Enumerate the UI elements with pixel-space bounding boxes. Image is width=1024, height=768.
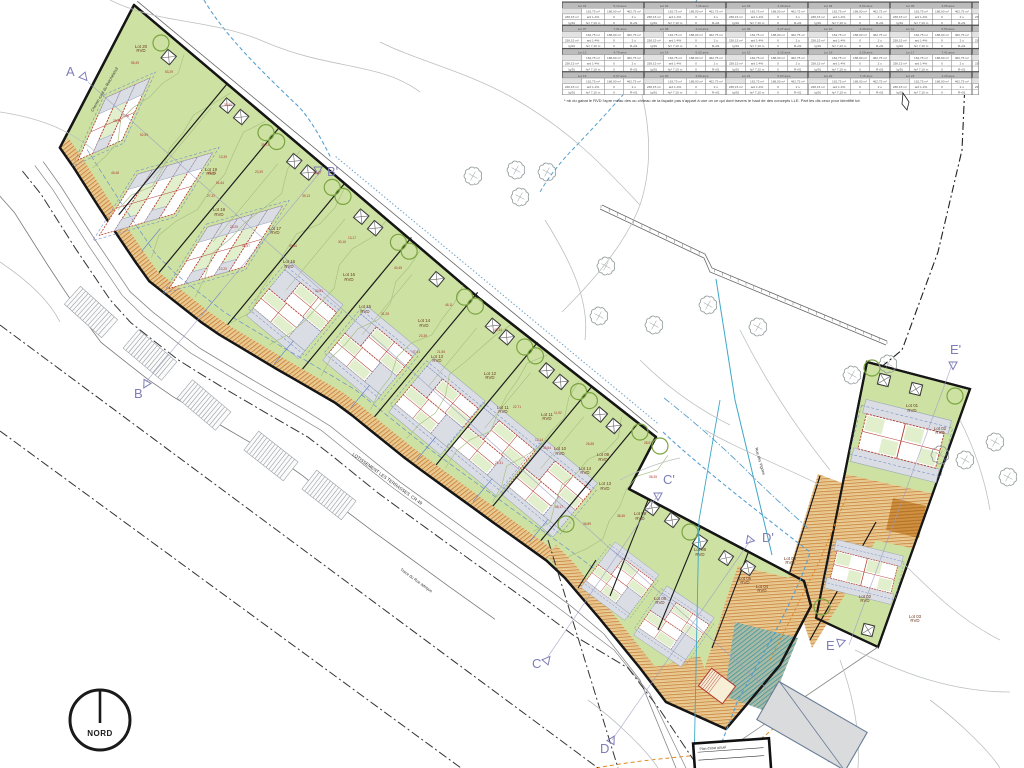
svg-text:3,80 ares: 3,80 ares — [696, 74, 709, 78]
svg-text:* nb du gabat le RVD l'apre me: * nb du gabat le RVD l'apre meau des ou … — [564, 98, 861, 103]
svg-text:hc² 7,10 m: hc² 7,10 m — [832, 44, 847, 48]
svg-text:Lot 24: Lot 24 — [988, 74, 997, 78]
svg-text:R+01: R+01 — [958, 67, 966, 71]
svg-text:R+01: R+01 — [794, 44, 802, 48]
svg-text:4,39 ares: 4,39 ares — [778, 4, 791, 8]
svg-text:lg/91: lg/91 — [568, 44, 575, 48]
svg-text:ard 1-4%: ard 1-4% — [915, 62, 928, 66]
svg-text:2 u: 2 u — [632, 85, 637, 89]
svg-text:D': D' — [762, 530, 774, 545]
svg-text:188,00 m²: 188,00 m² — [853, 56, 867, 60]
svg-text:RVD: RVD — [580, 470, 589, 475]
svg-text:462,75 m²: 462,75 m² — [955, 56, 969, 60]
svg-text:C: C — [532, 656, 541, 671]
svg-text:D: D — [600, 741, 609, 756]
svg-text:188,00 m²: 188,00 m² — [689, 33, 703, 37]
svg-text:RVD: RVD — [695, 552, 704, 557]
svg-text:50,81: 50,81 — [315, 289, 323, 293]
svg-text:36,35: 36,35 — [649, 475, 657, 479]
svg-text:R+01: R+01 — [794, 21, 802, 25]
svg-text:462,75 m²: 462,75 m² — [627, 79, 641, 83]
svg-text:0: 0 — [941, 44, 943, 48]
svg-text:Lot 13: Lot 13 — [578, 51, 587, 55]
svg-text:2 u: 2 u — [878, 15, 883, 19]
svg-text:ard 1-4%: ard 1-4% — [669, 39, 682, 43]
svg-text:21,55: 21,55 — [437, 350, 445, 354]
svg-text:RVD: RVD — [214, 212, 223, 217]
svg-text:hc² 7,10 m: hc² 7,10 m — [914, 44, 929, 48]
svg-text:23,39: 23,39 — [255, 170, 263, 174]
svg-text:5,13 ares: 5,13 ares — [614, 4, 627, 8]
svg-text:lg/91: lg/91 — [814, 91, 821, 95]
svg-text:43,47: 43,47 — [313, 171, 321, 175]
svg-text:ard 1-4%: ard 1-4% — [915, 39, 928, 43]
svg-text:7,01 ares: 7,01 ares — [614, 27, 627, 31]
svg-text:Lot 14: Lot 14 — [660, 51, 669, 55]
svg-text:462,75 m²: 462,75 m² — [791, 10, 805, 14]
svg-text:7,16 ares: 7,16 ares — [860, 74, 873, 78]
svg-text:0: 0 — [941, 39, 943, 43]
svg-text:0: 0 — [859, 91, 861, 95]
svg-text:lg/91: lg/91 — [732, 21, 739, 25]
svg-text:2 u: 2 u — [714, 85, 719, 89]
svg-text:0: 0 — [859, 21, 861, 25]
svg-text:238,15 m²: 238,15 m² — [647, 85, 661, 89]
svg-text:0: 0 — [859, 15, 861, 19]
svg-text:238,15 m²: 238,15 m² — [975, 39, 989, 43]
svg-text:lg/91: lg/91 — [978, 67, 985, 71]
svg-text:R+01: R+01 — [876, 44, 884, 48]
svg-text:0: 0 — [695, 91, 697, 95]
svg-text:238,15 m²: 238,15 m² — [565, 85, 579, 89]
svg-text:hc² 7,10 m: hc² 7,10 m — [832, 67, 847, 71]
svg-text:Lot 21: Lot 21 — [742, 74, 751, 78]
svg-text:R+01: R+01 — [958, 91, 966, 95]
svg-text:0: 0 — [777, 85, 779, 89]
svg-text:hc² 7,10 m: hc² 7,10 m — [668, 67, 683, 71]
svg-text:0: 0 — [613, 15, 615, 19]
svg-text:lg/91: lg/91 — [814, 21, 821, 25]
svg-text:5,53 ares: 5,53 ares — [942, 27, 955, 31]
svg-text:R+01: R+01 — [630, 91, 638, 95]
svg-text:462,75 m²: 462,75 m² — [709, 56, 723, 60]
svg-text:162,75 m²: 162,75 m² — [914, 79, 928, 83]
svg-text:RVD: RVD — [910, 618, 919, 623]
svg-text:0: 0 — [695, 44, 697, 48]
svg-text:R+01: R+01 — [876, 67, 884, 71]
svg-text:0: 0 — [695, 21, 697, 25]
svg-text:hc² 7,10 m: hc² 7,10 m — [996, 67, 1011, 71]
svg-text:RVD: RVD — [600, 486, 609, 491]
svg-text:hc² 7,10 m: hc² 7,10 m — [914, 21, 929, 25]
svg-text:188,00 m²: 188,00 m² — [607, 33, 621, 37]
svg-text:462,75 m²: 462,75 m² — [955, 33, 969, 37]
svg-text:35,80: 35,80 — [224, 103, 232, 107]
svg-text:3,15 ares: 3,15 ares — [778, 51, 791, 55]
svg-text:188,00 m²: 188,00 m² — [853, 33, 867, 37]
svg-text:13,39: 13,39 — [219, 155, 227, 159]
svg-text:Lot 09: Lot 09 — [742, 27, 751, 31]
svg-text:hc² 7,10 m: hc² 7,10 m — [668, 21, 683, 25]
svg-text:0: 0 — [695, 39, 697, 43]
svg-text:238,15 m²: 238,15 m² — [647, 15, 661, 19]
svg-text:R+01: R+01 — [876, 21, 884, 25]
svg-text:162,75 m²: 162,75 m² — [586, 33, 600, 37]
svg-text:0: 0 — [613, 44, 615, 48]
svg-text:2 u: 2 u — [632, 15, 637, 19]
svg-text:162,75 m²: 162,75 m² — [668, 10, 682, 14]
svg-text:RVD: RVD — [542, 416, 551, 421]
svg-text:ard 1-4%: ard 1-4% — [751, 15, 764, 19]
svg-text:lg/91: lg/91 — [568, 67, 575, 71]
svg-text:Trace du Rue adeque: Trace du Rue adeque — [399, 567, 434, 594]
svg-text:162,75 m²: 162,75 m² — [996, 10, 1010, 14]
svg-text:40,45: 40,45 — [394, 266, 402, 270]
svg-text:lg/91: lg/91 — [650, 91, 657, 95]
svg-text:lg/91: lg/91 — [896, 67, 903, 71]
svg-text:162,75 m²: 162,75 m² — [750, 79, 764, 83]
svg-text:162,75 m²: 162,75 m² — [996, 79, 1010, 83]
svg-text:162,75 m²: 162,75 m² — [668, 79, 682, 83]
svg-text:hc² 7,10 m: hc² 7,10 m — [914, 67, 929, 71]
svg-text:238,15 m²: 238,15 m² — [893, 62, 907, 66]
svg-text:Lot 15: Lot 15 — [742, 51, 751, 55]
svg-text:162,75 m²: 162,75 m² — [914, 33, 928, 37]
svg-text:162,75 m²: 162,75 m² — [750, 33, 764, 37]
svg-text:RVD: RVD — [907, 408, 916, 413]
svg-text:188,00 m²: 188,00 m² — [935, 79, 949, 83]
svg-text:238,15 m²: 238,15 m² — [811, 15, 825, 19]
svg-text:26,58: 26,58 — [586, 442, 594, 446]
svg-text:238,15 m²: 238,15 m² — [893, 85, 907, 89]
svg-text:ard 1-4%: ard 1-4% — [997, 62, 1010, 66]
svg-text:hc² 7,10 m: hc² 7,10 m — [750, 21, 765, 25]
svg-text:2 u: 2 u — [632, 62, 637, 66]
svg-text:0: 0 — [777, 91, 779, 95]
svg-text:ard 1-4%: ard 1-4% — [915, 85, 928, 89]
svg-text:hc² 7,10 m: hc² 7,10 m — [914, 91, 929, 95]
svg-text:38,36: 38,36 — [617, 514, 625, 518]
svg-text:0: 0 — [859, 44, 861, 48]
svg-text:2 u: 2 u — [714, 62, 719, 66]
svg-text:162,75 m²: 162,75 m² — [586, 10, 600, 14]
svg-text:R+01: R+01 — [712, 44, 720, 48]
svg-text:0: 0 — [613, 91, 615, 95]
svg-text:ard 1-4%: ard 1-4% — [751, 85, 764, 89]
svg-text:RVD: RVD — [498, 409, 507, 414]
svg-text:hc² 7,10 m: hc² 7,10 m — [750, 44, 765, 48]
svg-text:39,13: 39,13 — [302, 194, 310, 198]
svg-text:188,00 m²: 188,00 m² — [689, 79, 703, 83]
svg-text:E: E — [826, 638, 835, 653]
svg-text:lg/91: lg/91 — [650, 44, 657, 48]
svg-text:0: 0 — [859, 62, 861, 66]
svg-text:6,52 ares: 6,52 ares — [860, 4, 873, 8]
svg-text:Lot 22: Lot 22 — [824, 74, 833, 78]
svg-text:462,75 m²: 462,75 m² — [873, 79, 887, 83]
svg-text:C': C' — [663, 472, 675, 487]
svg-text:462,75 m²: 462,75 m² — [709, 10, 723, 14]
svg-text:238,15 m²: 238,15 m² — [975, 15, 989, 19]
svg-text:462,75 m²: 462,75 m² — [791, 79, 805, 83]
svg-text:R+01: R+01 — [712, 91, 720, 95]
svg-text:2 u: 2 u — [960, 15, 965, 19]
svg-text:0: 0 — [613, 21, 615, 25]
svg-text:238,15 m²: 238,15 m² — [811, 39, 825, 43]
svg-text:6,02 ares: 6,02 ares — [696, 51, 709, 55]
svg-text:0: 0 — [777, 15, 779, 19]
svg-text:2 u: 2 u — [796, 62, 801, 66]
svg-text:ard 1-4%: ard 1-4% — [587, 15, 600, 19]
svg-text:188,00 m²: 188,00 m² — [771, 79, 785, 83]
svg-text:lg/91: lg/91 — [568, 91, 575, 95]
svg-text:188,00 m²: 188,00 m² — [1017, 79, 1024, 83]
svg-text:5,28 ares: 5,28 ares — [860, 51, 873, 55]
svg-text:188,00 m²: 188,00 m² — [607, 79, 621, 83]
svg-text:20,39: 20,39 — [419, 334, 427, 338]
svg-text:0: 0 — [777, 62, 779, 66]
svg-text:188,00 m²: 188,00 m² — [1017, 56, 1024, 60]
svg-text:0: 0 — [859, 85, 861, 89]
svg-text:4,14 ares: 4,14 ares — [696, 27, 709, 31]
svg-text:ard 1-4%: ard 1-4% — [751, 62, 764, 66]
svg-text:31,28: 31,28 — [381, 312, 389, 316]
svg-text:188,00 m²: 188,00 m² — [771, 56, 785, 60]
svg-text:RVD: RVD — [757, 588, 766, 593]
svg-text:RVD: RVD — [635, 516, 644, 521]
svg-text:0: 0 — [859, 39, 861, 43]
svg-text:lg/91: lg/91 — [896, 44, 903, 48]
svg-text:188,00 m²: 188,00 m² — [771, 10, 785, 14]
svg-text:ard 1-4%: ard 1-4% — [587, 62, 600, 66]
svg-text:238,15 m²: 238,15 m² — [729, 39, 743, 43]
svg-text:11,92: 11,92 — [554, 411, 562, 415]
svg-text:0: 0 — [941, 21, 943, 25]
svg-text:49,34: 49,34 — [494, 328, 502, 332]
svg-text:6,27 ares: 6,27 ares — [778, 27, 791, 31]
svg-text:RVD: RVD — [935, 430, 944, 435]
svg-text:hc² 7,10 m: hc² 7,10 m — [750, 67, 765, 71]
svg-text:0: 0 — [695, 85, 697, 89]
svg-text:RVD: RVD — [270, 230, 279, 235]
svg-text:162,75 m²: 162,75 m² — [586, 79, 600, 83]
svg-text:0: 0 — [613, 67, 615, 71]
svg-text:R+01: R+01 — [794, 91, 802, 95]
svg-text:Lot 04: Lot 04 — [824, 4, 833, 8]
svg-text:lg/91: lg/91 — [896, 21, 903, 25]
svg-text:2 u: 2 u — [632, 39, 637, 43]
svg-text:47,41: 47,41 — [412, 350, 420, 354]
svg-text:ard 1-4%: ard 1-4% — [833, 15, 846, 19]
svg-text:R+01: R+01 — [958, 21, 966, 25]
svg-text:R+01: R+01 — [712, 67, 720, 71]
svg-text:ard 1-4%: ard 1-4% — [669, 62, 682, 66]
svg-text:22,31: 22,31 — [495, 461, 503, 465]
svg-text:162,75 m²: 162,75 m² — [668, 56, 682, 60]
svg-text:27,76: 27,76 — [121, 114, 129, 118]
svg-text:RVD: RVD — [655, 600, 664, 605]
svg-text:lg/91: lg/91 — [978, 91, 985, 95]
svg-text:hc² 7,10 m: hc² 7,10 m — [668, 91, 683, 95]
svg-text:Lot 05: Lot 05 — [906, 4, 915, 8]
svg-text:ard 1-4%: ard 1-4% — [587, 39, 600, 43]
svg-text:162,75 m²: 162,75 m² — [832, 56, 846, 60]
svg-text:lg/91: lg/91 — [732, 67, 739, 71]
svg-text:238,15 m²: 238,15 m² — [975, 62, 989, 66]
svg-text:2 u: 2 u — [960, 85, 965, 89]
svg-text:R+01: R+01 — [630, 67, 638, 71]
svg-text:238,15 m²: 238,15 m² — [565, 15, 579, 19]
svg-text:462,75 m²: 462,75 m² — [955, 10, 969, 14]
svg-text:188,00 m²: 188,00 m² — [853, 79, 867, 83]
svg-text:238,15 m²: 238,15 m² — [565, 39, 579, 43]
svg-text:R+01: R+01 — [958, 44, 966, 48]
svg-text:4,29 ares: 4,29 ares — [942, 74, 955, 78]
svg-text:hc² 7,10 m: hc² 7,10 m — [996, 44, 1011, 48]
svg-text:RVD: RVD — [136, 48, 145, 53]
svg-text:7,41 ares: 7,41 ares — [942, 51, 955, 55]
svg-text:2 u: 2 u — [796, 15, 801, 19]
svg-text:188,00 m²: 188,00 m² — [689, 56, 703, 60]
svg-text:462,75 m²: 462,75 m² — [627, 33, 641, 37]
svg-text:Lot 07: Lot 07 — [578, 27, 587, 31]
svg-text:hc² 7,10 m: hc² 7,10 m — [996, 21, 1011, 25]
svg-text:RVD: RVD — [860, 598, 869, 603]
svg-text:B': B' — [327, 164, 338, 179]
svg-text:Lot 19: Lot 19 — [578, 74, 587, 78]
svg-text:53,29: 53,29 — [165, 70, 173, 74]
svg-text:0: 0 — [777, 44, 779, 48]
svg-text:12,14: 12,14 — [535, 438, 543, 442]
svg-text:Rue des Vignes: Rue des Vignes — [754, 447, 767, 475]
svg-text:3,65 ares: 3,65 ares — [942, 4, 955, 8]
svg-text:RVD: RVD — [419, 323, 428, 328]
svg-text:3,40 ares: 3,40 ares — [860, 27, 873, 31]
svg-text:0: 0 — [777, 67, 779, 71]
svg-text:lg/91: lg/91 — [814, 44, 821, 48]
svg-text:R+01: R+01 — [630, 21, 638, 25]
svg-text:188,00 m²: 188,00 m² — [607, 10, 621, 14]
svg-text:46,11: 46,11 — [445, 303, 453, 307]
svg-text:RVD: RVD — [360, 309, 369, 314]
svg-text:hc² 7,10 m: hc² 7,10 m — [586, 44, 601, 48]
svg-text:Lot 17: Lot 17 — [906, 51, 915, 55]
svg-text:R+01: R+01 — [630, 44, 638, 48]
svg-text:462,75 m²: 462,75 m² — [873, 56, 887, 60]
svg-text:462,75 m²: 462,75 m² — [791, 33, 805, 37]
svg-text:238,15 m²: 238,15 m² — [647, 62, 661, 66]
svg-text:188,00 m²: 188,00 m² — [1017, 10, 1024, 14]
svg-text:462,75 m²: 462,75 m² — [955, 79, 969, 83]
svg-text:lg/91: lg/91 — [568, 21, 575, 25]
svg-text:6,67 ares: 6,67 ares — [614, 74, 627, 78]
svg-text:0: 0 — [941, 15, 943, 19]
svg-text:R+01: R+01 — [876, 91, 884, 95]
svg-text:162,75 m²: 162,75 m² — [914, 56, 928, 60]
svg-text:Lot 11: Lot 11 — [906, 27, 915, 31]
svg-text:22,71: 22,71 — [513, 405, 521, 409]
svg-text:188,00 m²: 188,00 m² — [771, 33, 785, 37]
svg-text:0: 0 — [941, 91, 943, 95]
svg-text:Lot 16: Lot 16 — [824, 51, 833, 55]
svg-text:238,15 m²: 238,15 m² — [565, 62, 579, 66]
svg-text:ard 1-4%: ard 1-4% — [669, 85, 682, 89]
svg-text:162,75 m²: 162,75 m² — [832, 10, 846, 14]
svg-text:30,16: 30,16 — [338, 240, 346, 244]
svg-text:hc² 7,10 m: hc² 7,10 m — [750, 91, 765, 95]
svg-text:ard 1-4%: ard 1-4% — [751, 39, 764, 43]
svg-text:ard 1-4%: ard 1-4% — [915, 15, 928, 19]
svg-text:Lot 08: Lot 08 — [660, 27, 669, 31]
svg-text:12,20: 12,20 — [219, 267, 227, 271]
svg-text:462,75 m²: 462,75 m² — [709, 33, 723, 37]
svg-text:Lot 06: Lot 06 — [988, 4, 997, 8]
svg-text:A: A — [66, 64, 75, 79]
svg-text:4,79 ares: 4,79 ares — [614, 51, 627, 55]
svg-text:28,96: 28,96 — [113, 119, 121, 123]
svg-text:0: 0 — [695, 67, 697, 71]
svg-text:2 u: 2 u — [960, 62, 965, 66]
svg-text:0: 0 — [613, 62, 615, 66]
svg-text:238,15 m²: 238,15 m² — [647, 39, 661, 43]
svg-text:lg/91: lg/91 — [732, 44, 739, 48]
svg-text:RVD: RVD — [555, 451, 564, 456]
svg-text:Lot 12: Lot 12 — [988, 27, 997, 31]
svg-text:238,15 m²: 238,15 m² — [729, 85, 743, 89]
svg-text:7,26 ares: 7,26 ares — [696, 4, 709, 8]
svg-text:35,71: 35,71 — [261, 143, 269, 147]
svg-text:RVD: RVD — [598, 457, 607, 462]
svg-text:NORD: NORD — [87, 729, 113, 738]
svg-text:R+01: R+01 — [712, 21, 720, 25]
svg-text:162,75 m²: 162,75 m² — [832, 79, 846, 83]
svg-text:238,15 m²: 238,15 m² — [811, 62, 825, 66]
svg-text:lg/91: lg/91 — [650, 67, 657, 71]
svg-text:lg/91: lg/91 — [650, 21, 657, 25]
svg-text:188,00 m²: 188,00 m² — [607, 56, 621, 60]
svg-text:hc² 7,10 m: hc² 7,10 m — [832, 91, 847, 95]
svg-text:lg/91: lg/91 — [978, 21, 985, 25]
svg-text:13,17: 13,17 — [348, 236, 356, 240]
svg-text:56,57: 56,57 — [242, 244, 250, 248]
svg-text:Lot 23: Lot 23 — [906, 74, 915, 78]
svg-text:lg/91: lg/91 — [814, 67, 821, 71]
svg-text:238,15 m²: 238,15 m² — [975, 85, 989, 89]
svg-text:2 u: 2 u — [878, 85, 883, 89]
svg-text:162,75 m²: 162,75 m² — [832, 33, 846, 37]
svg-text:462,75 m²: 462,75 m² — [627, 56, 641, 60]
svg-text:5,03 ares: 5,03 ares — [778, 74, 791, 78]
svg-text:238,15 m²: 238,15 m² — [729, 62, 743, 66]
svg-text:58,17: 58,17 — [555, 505, 563, 509]
svg-text:162,75 m²: 162,75 m² — [668, 33, 682, 37]
svg-text:hc² 7,10 m: hc² 7,10 m — [668, 44, 683, 48]
svg-text:hc² 7,10 m: hc² 7,10 m — [832, 21, 847, 25]
svg-text:0: 0 — [777, 21, 779, 25]
svg-text:188,00 m²: 188,00 m² — [1017, 33, 1024, 37]
svg-text:ard 1-4%: ard 1-4% — [997, 39, 1010, 43]
svg-text:28,51: 28,51 — [644, 441, 652, 445]
svg-text:188,00 m²: 188,00 m² — [935, 10, 949, 14]
svg-text:RVD: RVD — [344, 277, 353, 282]
svg-text:0: 0 — [941, 62, 943, 66]
svg-text:36,89: 36,89 — [583, 522, 591, 526]
svg-text:162,75 m²: 162,75 m² — [750, 10, 764, 14]
svg-text:462,75 m²: 462,75 m² — [791, 56, 805, 60]
svg-text:462,75 m²: 462,75 m² — [873, 33, 887, 37]
svg-text:36,64: 36,64 — [543, 446, 551, 450]
svg-text:33,56: 33,56 — [289, 244, 297, 248]
